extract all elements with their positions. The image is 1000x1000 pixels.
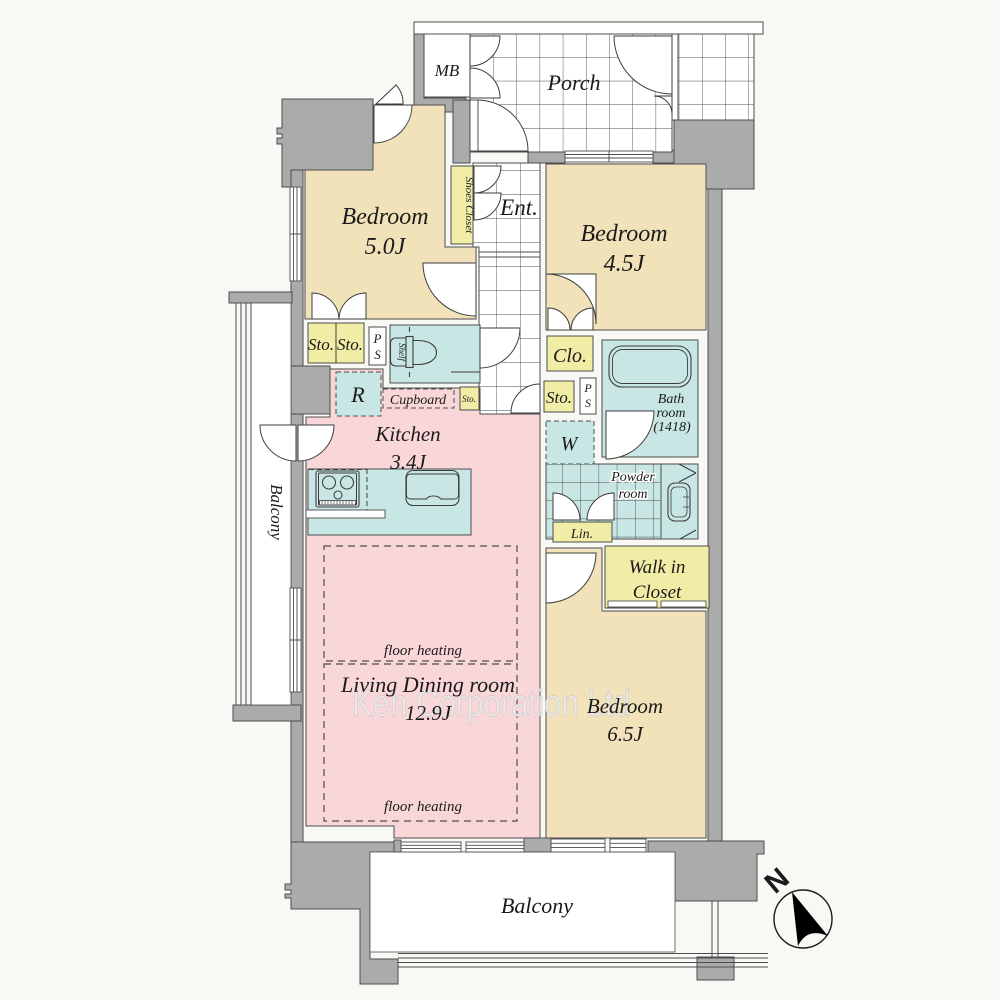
svg-text:P: P — [373, 331, 382, 346]
svg-text:W: W — [561, 433, 580, 455]
svg-text:Balcony: Balcony — [501, 893, 573, 918]
svg-text:Bedroom: Bedroom — [341, 204, 428, 230]
svg-text:MB: MB — [434, 61, 460, 80]
svg-text:Cupboard: Cupboard — [390, 393, 447, 408]
svg-text:Living Dining room: Living Dining room — [340, 672, 515, 697]
svg-text:S: S — [374, 347, 381, 362]
svg-text:3.4J: 3.4J — [389, 450, 427, 474]
svg-text:room: room — [656, 406, 685, 421]
svg-text:floor heating: floor heating — [384, 799, 462, 815]
svg-text:Ent.: Ent. — [499, 195, 538, 220]
svg-text:Bedroom: Bedroom — [587, 694, 663, 718]
svg-text:Shoes Closet: Shoes Closet — [463, 177, 475, 234]
svg-text:P: P — [583, 381, 592, 395]
svg-text:5.0J: 5.0J — [365, 234, 407, 260]
svg-text:Sto.: Sto. — [337, 335, 363, 354]
svg-text:Sto.: Sto. — [308, 335, 334, 354]
svg-text:Porch: Porch — [547, 70, 601, 95]
svg-text:4.5J: 4.5J — [604, 251, 646, 277]
svg-text:Closet: Closet — [633, 582, 682, 603]
svg-text:6.5J: 6.5J — [607, 722, 644, 746]
svg-text:(1418): (1418) — [653, 420, 691, 435]
svg-text:Bedroom: Bedroom — [580, 221, 667, 247]
svg-text:Walk in: Walk in — [629, 557, 686, 578]
svg-text:Clo.: Clo. — [553, 345, 587, 367]
svg-text:Powder: Powder — [610, 470, 655, 485]
svg-text:Shelf: Shelf — [397, 343, 407, 362]
svg-text:floor heating: floor heating — [384, 643, 462, 659]
svg-text:Sto.: Sto. — [546, 388, 572, 407]
svg-text:S: S — [585, 396, 591, 410]
svg-text:Bath: Bath — [658, 392, 684, 407]
svg-text:Balcony: Balcony — [267, 484, 286, 540]
svg-text:Sto.: Sto. — [462, 394, 476, 404]
svg-text:room: room — [618, 487, 647, 502]
svg-text:12.9J: 12.9J — [405, 701, 453, 725]
svg-text:R: R — [350, 382, 365, 407]
svg-text:Kitchen: Kitchen — [374, 422, 440, 446]
svg-text:Lin.: Lin. — [570, 527, 593, 542]
